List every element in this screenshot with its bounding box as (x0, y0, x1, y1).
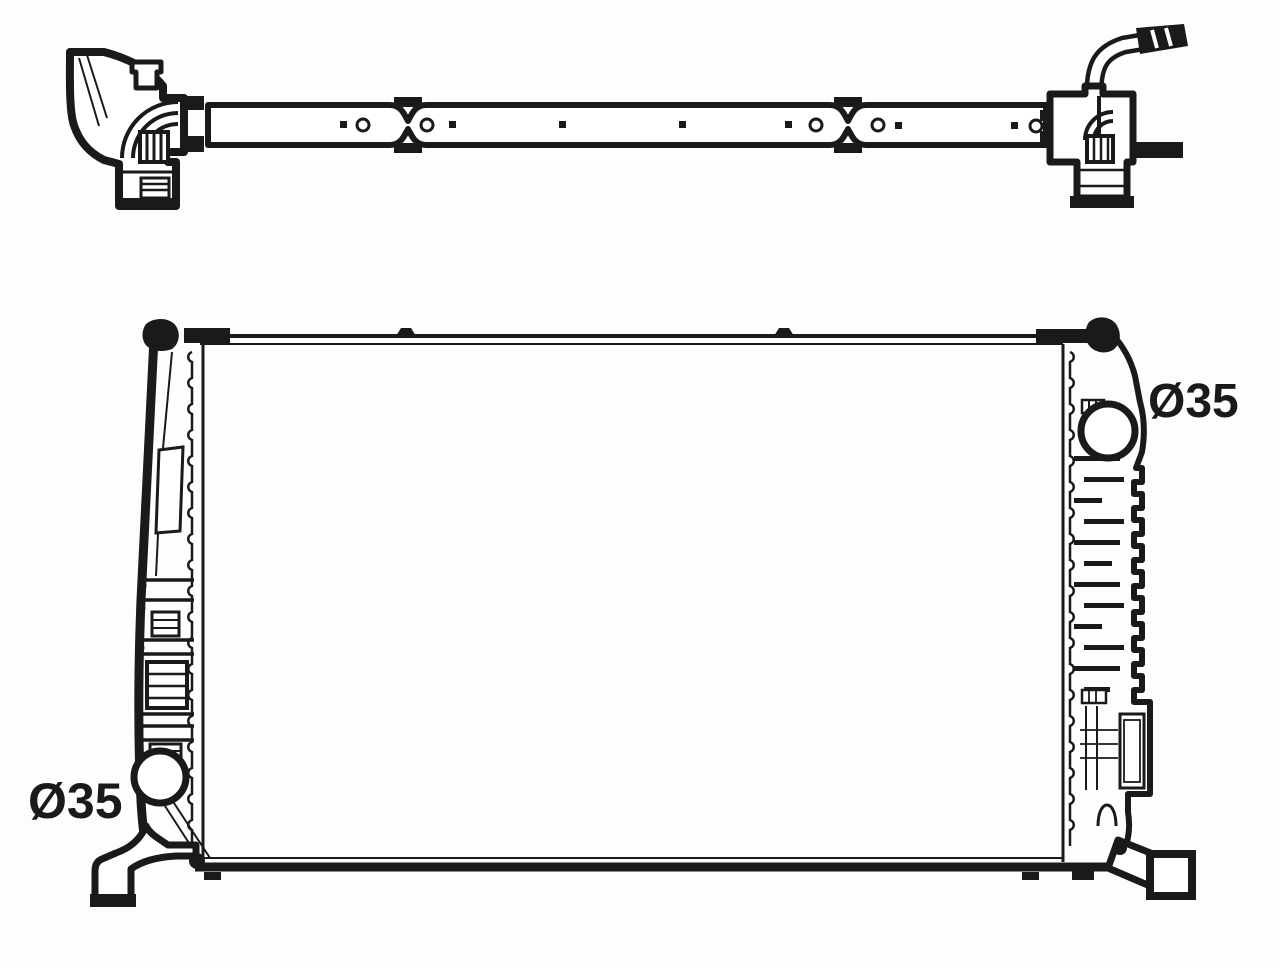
radiator-core (142, 317, 1119, 880)
left-bracket-foot-rib (141, 178, 169, 198)
right-tank-arch-detail (1098, 805, 1116, 826)
top-view (70, 24, 1188, 209)
right-side-bar (1133, 142, 1183, 158)
right-tank-gasket-scallop (1070, 352, 1074, 846)
radiator-diagram: Ø35 Ø35 (0, 0, 1280, 968)
front-view: Ø35 Ø35 (28, 317, 1239, 907)
outlet-pipe-tip (1136, 24, 1188, 54)
right-fitting-base-pad (1070, 196, 1134, 208)
core-bottom-tabs (204, 871, 1094, 880)
drawing-canvas: Ø35 Ø35 (0, 0, 1280, 968)
right-tank-small-rib (1082, 690, 1106, 703)
top-left-mount-knob (142, 319, 178, 351)
core-top-left-step (184, 328, 230, 343)
right-tank-rib-bars (1074, 456, 1124, 692)
right-foot-junction (1113, 841, 1127, 855)
left-bracket-stem (132, 62, 161, 88)
outlet-port-top-right (1081, 404, 1135, 458)
right-foot-pad (1150, 854, 1192, 896)
left-bracket-fitting (70, 52, 204, 209)
left-foot-pad (90, 894, 136, 907)
inlet-port-bottom-left (134, 751, 186, 803)
core-top-right-step (1036, 329, 1088, 343)
left-mount-foot (95, 826, 196, 898)
right-fitting (1040, 24, 1188, 208)
left-bracket-base-pad (116, 198, 178, 209)
port-diameter-label-top-right: Ø35 (1148, 375, 1239, 428)
right-tank-vertical-lines (1086, 706, 1097, 790)
left-bracket-bar-clips (186, 96, 204, 152)
core-side-edges (203, 344, 1063, 862)
left-tank-rib-box-1 (152, 612, 179, 636)
left-foot-junction (189, 853, 205, 869)
crossmember-bar (208, 105, 1046, 145)
left-tank-label-plate (156, 447, 183, 533)
port-diameter-label-bottom-left: Ø35 (28, 773, 123, 829)
